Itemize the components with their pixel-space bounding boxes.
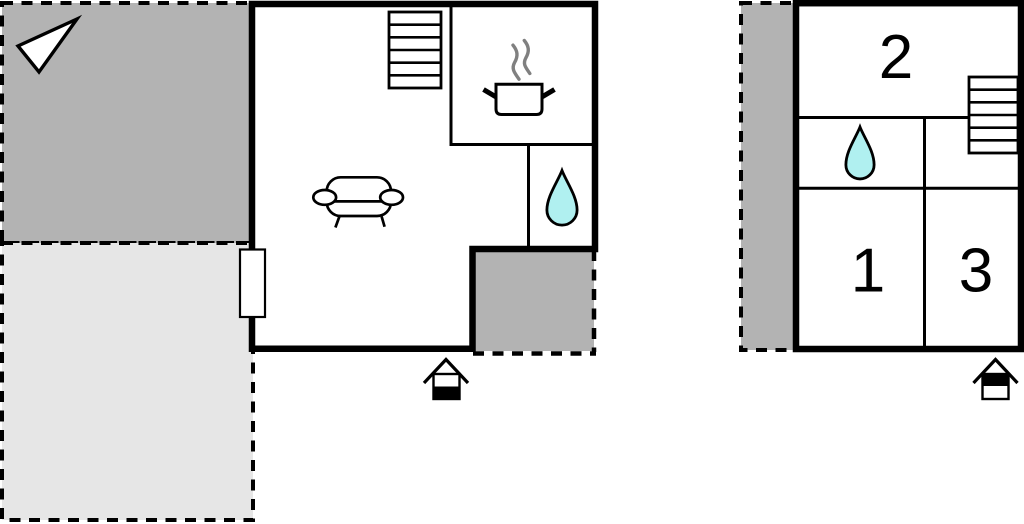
svg-text:3: 3 <box>959 237 993 306</box>
svg-text:1: 1 <box>851 237 885 306</box>
svg-text:2: 2 <box>879 23 913 92</box>
